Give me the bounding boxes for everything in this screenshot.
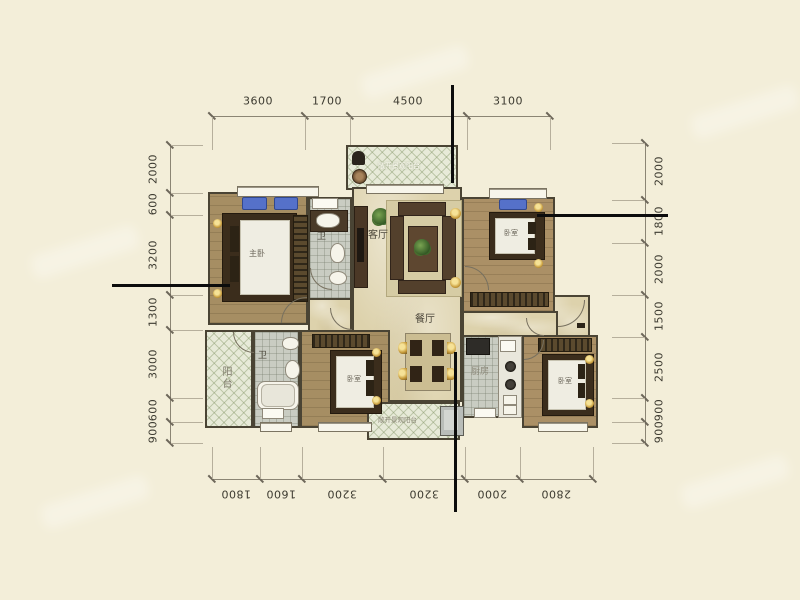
label-bedroom-top-right: 卧室 (504, 230, 518, 237)
dim-top-3: 3100 (493, 95, 523, 108)
dim-left-6: 900 (147, 421, 160, 444)
table-plant (414, 239, 430, 255)
appliance-tag (312, 198, 338, 209)
dim-right-6: 900 (653, 421, 666, 444)
appliance-tag (262, 408, 284, 419)
toilet (285, 360, 300, 379)
label-living: 客厅 (368, 231, 388, 241)
kitchen-sink (503, 395, 517, 405)
sofa-bottom (398, 280, 446, 294)
stove-burner (505, 361, 516, 372)
label-bedroom-bottom-left: 卧室 (347, 376, 361, 383)
master-bed-pillow (230, 256, 239, 282)
dim-right-2: 2000 (653, 254, 666, 284)
sofa-left (390, 216, 404, 280)
dim-line-bottom (212, 479, 593, 480)
bedroom-bl-pillow (366, 380, 374, 396)
label-bath-top: 卫 (317, 233, 326, 242)
washbasin (282, 337, 299, 350)
dim-right-0: 2000 (653, 156, 666, 186)
dim-left-2: 3200 (147, 240, 160, 270)
dim-bottom-4: 2000 (477, 488, 507, 501)
bedroom-br-wardrobe (538, 338, 592, 352)
watermark (359, 44, 471, 101)
balcony-pot (352, 169, 367, 184)
window-bedroom-bl (318, 422, 372, 432)
dim-bottom-3: 3200 (409, 488, 439, 501)
callout-line-right (537, 214, 668, 217)
bedside-lamp (372, 396, 381, 405)
dim-bottom-2: 3200 (327, 488, 357, 501)
callout-line-top (451, 85, 454, 183)
balcony-planter (352, 151, 365, 165)
kitchen-sink (503, 405, 517, 415)
window-cushion (499, 199, 527, 210)
sofa-top (398, 202, 446, 216)
watermark (689, 84, 800, 141)
fridge (466, 338, 490, 355)
bedside-lamp (534, 203, 543, 212)
watermark (29, 224, 141, 281)
floor-lamp (450, 208, 461, 219)
balcony-door-living (366, 184, 444, 194)
dim-left-5: 600 (147, 399, 160, 422)
sofa-right (442, 216, 456, 280)
window-cushion (242, 197, 267, 210)
dim-bottom-0: 1800 (221, 488, 251, 501)
label-bottom-balcony: 敞开景观阳台 (378, 417, 417, 424)
place-setting (410, 340, 422, 356)
watermark (39, 474, 151, 531)
small-appliance (500, 340, 516, 352)
window-bath-bottom (260, 422, 292, 432)
label-dining: 餐厅 (415, 315, 435, 325)
entry-door-handle (577, 323, 585, 328)
bedside-lamp (213, 289, 222, 298)
dim-right-1: 1800 (653, 206, 666, 236)
label-bedroom-bottom-right: 卧室 (558, 378, 572, 385)
dim-top-1: 1700 (312, 95, 342, 108)
bathtub-inner (261, 384, 295, 407)
dim-left-0: 2000 (147, 154, 160, 184)
dining-chair (398, 342, 407, 354)
dim-top-2: 4500 (393, 95, 423, 108)
bedside-lamp (585, 355, 594, 364)
appliance-tag (474, 408, 496, 418)
callout-line-bottom (454, 352, 457, 512)
dim-right-3: 1500 (653, 301, 666, 331)
tv (357, 228, 364, 262)
window-cushion (274, 197, 298, 210)
stove-burner (505, 379, 516, 390)
callout-line-left (112, 284, 230, 287)
bay-window-bedroom-tr (489, 188, 547, 199)
bedside-lamp (585, 399, 594, 408)
label-master-bedroom: 主卧 (249, 250, 265, 258)
label-side-balcony: 阳台 (220, 366, 230, 390)
master-bed-mattress (240, 220, 290, 295)
master-wardrobe (293, 215, 308, 302)
dim-left-4: 3000 (147, 349, 160, 379)
floor-plan-canvas: 3600 1700 4500 3100 1800 1600 3200 3200 … (0, 0, 800, 600)
place-setting (432, 340, 444, 356)
bedroom-tr-wardrobe (470, 292, 549, 307)
label-top-balcony: 敞开景观阳台 (378, 163, 420, 170)
place-setting (410, 366, 422, 382)
bedside-lamp (534, 259, 543, 268)
window-bedroom-br (538, 422, 588, 432)
bedside-lamp (213, 219, 222, 228)
washbasin (316, 213, 340, 228)
bedroom-tr-pillow (528, 238, 536, 250)
dim-bottom-1: 1600 (266, 488, 296, 501)
bedroom-bl-wardrobe (312, 334, 370, 348)
watermark (679, 454, 791, 511)
dining-chair (398, 368, 407, 380)
bay-window-master (237, 186, 319, 197)
label-kitchen: 厨房 (471, 368, 489, 377)
dim-right-5: 900 (653, 399, 666, 422)
dim-left-1: 600 (147, 193, 160, 216)
dim-right-4: 2500 (653, 352, 666, 382)
bedroom-tr-pillow (528, 222, 536, 234)
toilet (330, 243, 345, 263)
bedroom-br-pillow (578, 383, 585, 398)
master-bed-pillow (230, 226, 239, 252)
dim-top-0: 3600 (243, 95, 273, 108)
label-bath-bottom: 卫 (258, 352, 267, 361)
dim-line-top (212, 116, 550, 117)
bedroom-bl-pillow (366, 360, 374, 376)
dim-left-3: 1300 (147, 297, 160, 327)
bedside-lamp (372, 348, 381, 357)
dim-bottom-5: 2800 (541, 488, 571, 501)
floor-lamp (450, 277, 461, 288)
bedroom-br-pillow (578, 364, 585, 379)
place-setting (432, 366, 444, 382)
